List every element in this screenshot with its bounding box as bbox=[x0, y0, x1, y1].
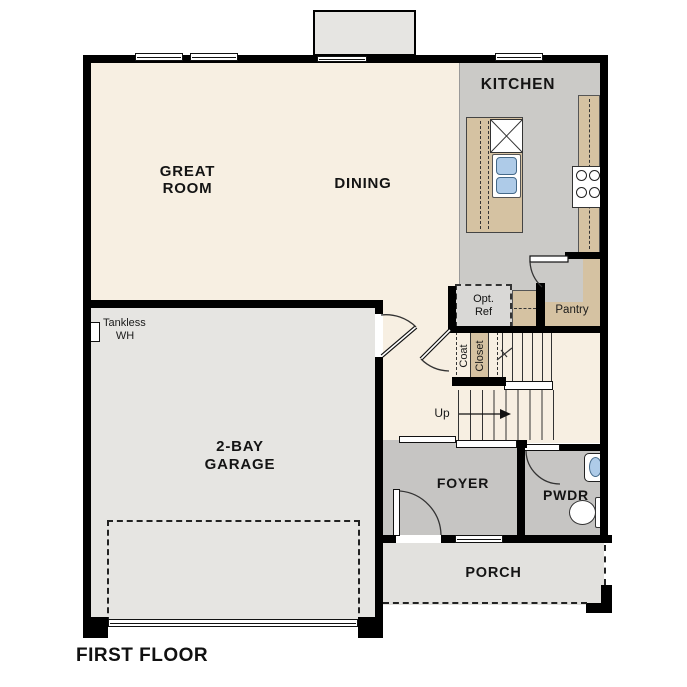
sink-basin bbox=[496, 177, 517, 194]
island-cabinet-line bbox=[488, 121, 489, 229]
front-sidelite-window bbox=[455, 535, 503, 543]
great-room-label-line2: ROOM bbox=[130, 180, 245, 197]
exterior-right-wall bbox=[600, 55, 608, 543]
sink-basin bbox=[496, 157, 517, 175]
optional-refrigerator-box: Opt. Ref bbox=[455, 284, 512, 328]
garage-south-stub bbox=[358, 617, 383, 638]
closet-label: Closet bbox=[474, 333, 486, 379]
kitchen-south-wall bbox=[448, 326, 608, 333]
pantry-label: Pantry bbox=[542, 304, 602, 317]
opt-ref-label-line1: Opt. bbox=[457, 293, 510, 306]
window bbox=[190, 53, 238, 61]
window bbox=[135, 53, 183, 61]
garage-label-line2: GARAGE bbox=[180, 456, 300, 474]
porch-dashed-edge bbox=[383, 602, 587, 604]
stair-upper-flight bbox=[502, 332, 552, 383]
porch-corner-wall bbox=[586, 603, 612, 613]
tankless-wh-label: Tankless WH bbox=[103, 317, 165, 343]
garage-east-wall bbox=[375, 357, 383, 628]
foyer-label: FOYER bbox=[413, 475, 513, 492]
fireplace-opening bbox=[317, 56, 367, 62]
stair-bottom-threshold bbox=[456, 440, 517, 448]
foyer-south-wall bbox=[441, 535, 455, 543]
hall-foyer-opening bbox=[399, 436, 456, 443]
chimney-outline bbox=[313, 10, 416, 56]
dishwasher-box bbox=[490, 119, 523, 153]
great-room-label-line1: GREAT bbox=[130, 163, 245, 180]
powder-north-wall bbox=[560, 444, 608, 451]
counter-center-line bbox=[514, 308, 536, 309]
pantry-entry-alcove bbox=[545, 258, 583, 302]
plan-title: FIRST FLOOR bbox=[76, 645, 208, 667]
front-door-leaf bbox=[393, 489, 400, 536]
powder-door-leaf bbox=[524, 444, 560, 451]
porch-label: PORCH bbox=[383, 565, 604, 582]
exterior-left-wall bbox=[83, 55, 91, 633]
stairs-up-label: Up bbox=[430, 407, 454, 420]
stair-lower-flight bbox=[458, 390, 554, 440]
dining-label: DINING bbox=[303, 175, 423, 192]
great-room-label: GREAT ROOM bbox=[130, 163, 245, 197]
pantry-north-wall bbox=[565, 252, 608, 259]
burner-icon bbox=[589, 170, 600, 181]
powder-label: PWDR bbox=[516, 487, 616, 504]
garage-label-line1: 2-BAY bbox=[180, 438, 300, 456]
tankless-label-line2: WH bbox=[103, 330, 147, 343]
burner-icon bbox=[589, 187, 600, 198]
garage-north-wall bbox=[83, 300, 383, 308]
stair-mid-wall bbox=[452, 377, 506, 386]
garage-east-wall bbox=[375, 300, 383, 314]
porch-dashed-edge bbox=[604, 545, 606, 585]
burner-icon bbox=[576, 170, 587, 181]
closet-dashed-edge bbox=[456, 332, 457, 380]
porch-right-wall bbox=[601, 585, 612, 605]
garage-overhead-door bbox=[108, 619, 358, 627]
kitchen-label: KITCHEN bbox=[458, 76, 578, 93]
floor-plan: Opt. Ref Coat Closet Up Tankless WH bbox=[0, 0, 687, 687]
foyer-south-wall bbox=[503, 535, 612, 543]
opt-ref-label-line2: Ref bbox=[457, 306, 510, 319]
burner-icon bbox=[576, 187, 587, 198]
window bbox=[495, 53, 543, 61]
garage-south-stub bbox=[83, 617, 108, 638]
stair-landing bbox=[504, 381, 553, 390]
foyer-south-wall bbox=[375, 535, 396, 543]
island-cabinet-line bbox=[480, 121, 481, 229]
garage-door-ceiling-outline bbox=[107, 520, 360, 623]
tankless-label-line1: Tankless bbox=[103, 317, 165, 330]
coat-label: Coat bbox=[458, 336, 470, 376]
garage-label: 2-BAY GARAGE bbox=[180, 438, 300, 474]
fridge-nook-wall bbox=[448, 286, 456, 326]
closet-dashed-edge bbox=[497, 332, 498, 380]
